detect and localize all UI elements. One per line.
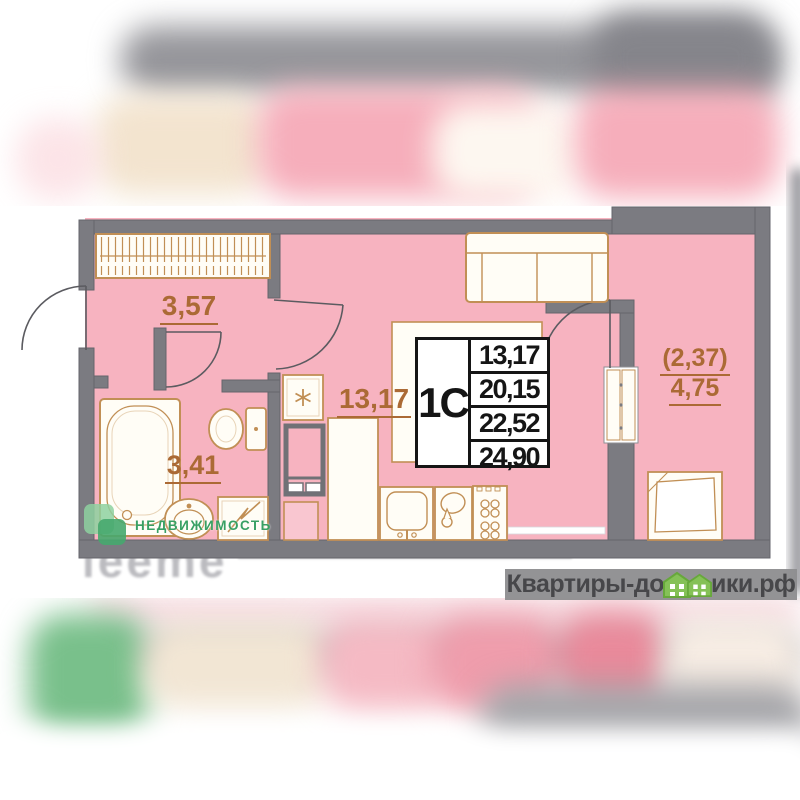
agency-logo-icon (82, 502, 130, 548)
area-value-row: 13,17 (471, 340, 547, 374)
fridge-icon (283, 375, 323, 420)
wall-left-upper (79, 220, 94, 290)
unit-type-cell: 1С (418, 340, 468, 465)
cabinet-tall-icon (328, 418, 378, 540)
living-kitchen-area-label: 13,17 (326, 383, 422, 418)
wall-bath-stub (94, 376, 108, 388)
site-brand-logo: Квартиры-до ики.рф (505, 569, 797, 600)
unit-area-table: 1С 13,17 20,15 22,52 24,90 (415, 337, 550, 468)
listing-floorplan-image: { "floor_plan": { "unit_type": "1С", "ar… (0, 0, 800, 800)
wall-top-balcony (612, 207, 770, 234)
unit-area-values: 13,17 20,15 22,52 24,90 (468, 340, 547, 465)
balcony-area-label: 4,75 (650, 374, 740, 406)
brand-text-prefix: Квартиры-до (507, 570, 664, 599)
area-value-row: 22,52 (471, 408, 547, 442)
balcony-table-icon (648, 472, 722, 540)
agency-name: НЕДВИЖИМОСТЬ (135, 518, 272, 533)
stove-icon (473, 486, 507, 540)
sofa-icon (466, 233, 608, 302)
house-icon (687, 573, 712, 597)
wall-divider-upper (620, 313, 634, 369)
cabinet-low-icon (284, 502, 318, 540)
wall-top-main (79, 220, 626, 234)
wall-hall-internal (154, 328, 166, 390)
wall-divider-lower (608, 441, 634, 540)
kitchen-window-sill (508, 527, 605, 534)
agency-watermark: НЕДВИЖИМОСТЬ (82, 502, 272, 548)
bathroom-area-label: 3,41 (148, 450, 238, 484)
kitchen-washbasin-icon (435, 487, 472, 540)
toilet-icon (209, 408, 266, 450)
balcony-window (604, 367, 638, 443)
brand-text-suffix: ики.рф (711, 570, 795, 599)
area-value-row: 20,15 (471, 374, 547, 408)
wardrobe-icon (96, 234, 270, 278)
area-value-row: 24,90 (471, 442, 547, 473)
kitchen-sink-icon (380, 487, 433, 540)
wall-bath-top (222, 380, 280, 392)
wall-right (755, 207, 770, 558)
entrance-door (22, 286, 86, 350)
kitchen-unit-icon (285, 426, 324, 494)
hallway-area-label: 3,57 (144, 290, 234, 325)
balcony-coefficient-label: (2,37) (650, 344, 740, 376)
